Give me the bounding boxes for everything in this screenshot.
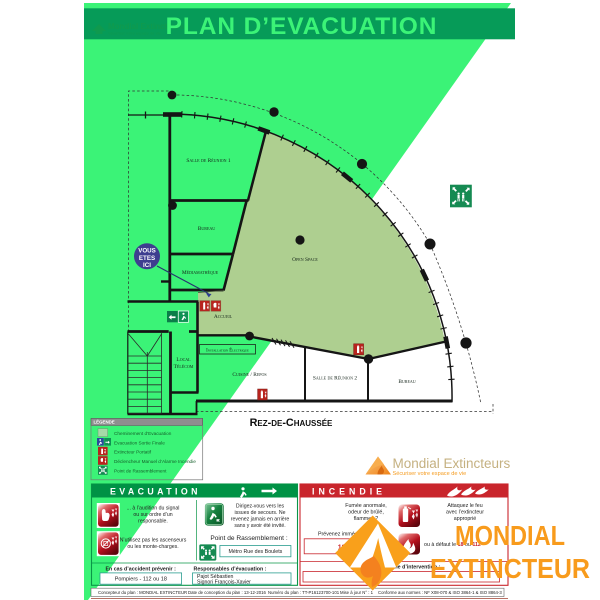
svg-text:Concepteur du plan : MONDIAL E: Concepteur du plan : MONDIAL EXTINCTEUR <box>98 590 187 595</box>
svg-text:Pompiers - 112 ou 18: Pompiers - 112 ou 18 <box>115 577 167 583</box>
svg-text:ou les monte-charges.: ou les monte-charges. <box>127 544 178 550</box>
svg-text:responsable.: responsable. <box>138 519 168 525</box>
svg-text:Sécuriser votre espace de vie: Sécuriser votre espace de vie <box>393 471 467 477</box>
svg-text:Local: Local <box>176 357 191 363</box>
svg-text:Bureau: Bureau <box>398 379 415 385</box>
svg-text:Mise à jour N° : 1: Mise à jour N° : 1 <box>340 590 374 595</box>
svg-text:ETES: ETES <box>139 255 155 262</box>
svg-text:revenez jamais en arrière: revenez jamais en arrière <box>231 517 290 523</box>
svg-text:Open Space: Open Space <box>292 257 318 263</box>
svg-text:MONDIAL: MONDIAL <box>455 520 565 551</box>
svg-text:Bureau: Bureau <box>198 226 215 232</box>
svg-text:avec l’extincteur: avec l’extincteur <box>446 510 484 516</box>
svg-text:Fumée anormale,: Fumée anormale, <box>345 503 387 509</box>
svg-text:VOUS: VOUS <box>138 248 156 255</box>
svg-text:En cas d’accident prévenir :: En cas d’accident prévenir : <box>106 566 177 572</box>
svg-text:sans y avoir été invité.: sans y avoir été invité. <box>234 523 285 529</box>
svg-text:Accueil: Accueil <box>214 314 233 320</box>
svg-text:Salle de Réunion 2: Salle de Réunion 2 <box>313 376 358 382</box>
svg-text:EXTINCTEUR: EXTINCTEUR <box>430 553 590 584</box>
svg-text:issues de secours. Ne: issues de secours. Ne <box>234 510 285 516</box>
svg-text:Conforme aux normes : NF X08-0: Conforme aux normes : NF X08-070 & ISO 3… <box>378 590 502 595</box>
svg-text:Sécuriser votre espace de vie: Sécuriser votre espace de vie <box>108 31 161 36</box>
svg-text:ou sur ordre d’un: ou sur ordre d’un <box>133 512 172 518</box>
svg-text:INCENDIE: INCENDIE <box>312 486 386 496</box>
svg-text:Cuisine / Repos: Cuisine / Repos <box>232 372 266 378</box>
svg-text:Installation Électrique: Installation Électrique <box>206 347 249 353</box>
svg-text:LÉGENDE: LÉGENDE <box>94 420 115 425</box>
svg-text:odeur de brûlé,: odeur de brûlé, <box>348 510 384 516</box>
svg-text:Cheminement d’Evacuation: Cheminement d’Evacuation <box>114 431 172 436</box>
svg-text:Attaquez le feu: Attaquez le feu <box>447 503 482 509</box>
svg-text:EVACUATION: EVACUATION <box>110 486 201 496</box>
svg-text:Numéro du plan : TT-P16123700-: Numéro du plan : TT-P16123700-101 <box>268 590 340 595</box>
svg-text:Télécom: Télécom <box>174 364 194 370</box>
svg-text:Salle de Réunion 1: Salle de Réunion 1 <box>186 158 231 164</box>
svg-text:Mondial Extincteurs: Mondial Extincteurs <box>393 456 511 471</box>
svg-text:PLAN D’EVACUATION: PLAN D’EVACUATION <box>166 13 438 40</box>
svg-text:Point de Rassemblement :: Point de Rassemblement : <box>210 535 287 542</box>
svg-text:... à l’audition du signal: ... à l’audition du signal <box>127 506 180 512</box>
svg-text:Dirigez-vous vers les: Dirigez-vous vers les <box>236 504 285 510</box>
svg-text:Médiamathèque: Médiamathèque <box>182 270 219 276</box>
svg-text:Extincteur Portatif: Extincteur Portatif <box>114 449 152 454</box>
svg-text:Point de Rassemblement: Point de Rassemblement <box>114 468 167 473</box>
svg-text:Evacuation Sortie Finale: Evacuation Sortie Finale <box>114 440 165 445</box>
svg-text:Déclencheur Manuel d’Alarme In: Déclencheur Manuel d’Alarme Incendie <box>114 459 196 464</box>
svg-text:Métro Rue des Boulets: Métro Rue des Boulets <box>228 549 282 555</box>
svg-text:ICI: ICI <box>143 262 151 269</box>
svg-text:Signori François-Xavier: Signori François-Xavier <box>197 579 251 585</box>
svg-text:Rez-de-Chaussée: Rez-de-Chaussée <box>250 417 333 429</box>
svg-text:N’utilisez pas les ascenseurs: N’utilisez pas les ascenseurs <box>120 538 187 544</box>
svg-text:Responsables d’évacuation :: Responsables d’évacuation : <box>194 566 267 572</box>
svg-text:Date de conception du plan : 1: Date de conception du plan : 13-12-2016 <box>188 590 266 595</box>
